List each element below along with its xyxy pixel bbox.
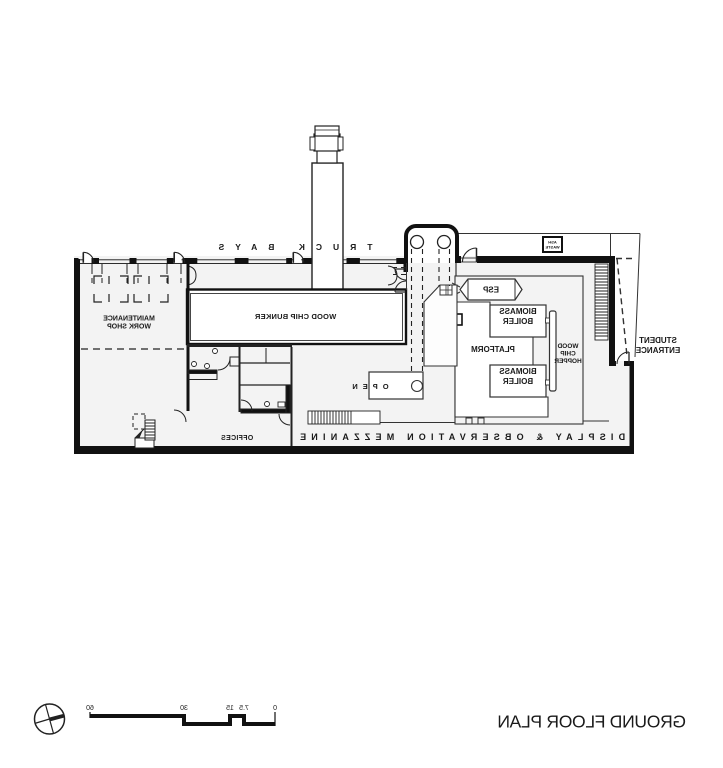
svg-text:BOILER: BOILER (503, 377, 533, 386)
svg-text:WASTE: WASTE (545, 245, 560, 250)
svg-text:WOOD: WOOD (557, 343, 578, 350)
svg-text:TRUCK BAYS: TRUCK BAYS (208, 242, 373, 252)
svg-text:30: 30 (180, 705, 188, 712)
svg-text:HOPPER: HOPPER (554, 358, 582, 365)
svg-text:ENTRANCE: ENTRANCE (635, 346, 680, 355)
svg-text:OFFICES: OFFICES (221, 435, 253, 442)
svg-text:WORK SHOP: WORK SHOP (107, 324, 151, 331)
svg-text:60: 60 (86, 705, 94, 712)
svg-text:DISPLAY & OBSERVATION MEZZANIN: DISPLAY & OBSERVATION MEZZANINE (295, 432, 625, 442)
svg-text:PLATFORM: PLATFORM (471, 345, 515, 354)
svg-text:STUDENT: STUDENT (639, 336, 677, 345)
svg-text:0: 0 (273, 705, 277, 712)
svg-text:BIOMASS: BIOMASS (499, 307, 537, 316)
svg-text:BIOMASS: BIOMASS (499, 367, 537, 376)
svg-text:GROUND FLOOR PLAN: GROUND FLOOR PLAN (498, 712, 686, 732)
svg-text:ESP: ESP (482, 286, 499, 295)
svg-text:7.5: 7.5 (239, 705, 249, 712)
svg-text:CHIP: CHIP (560, 351, 576, 358)
svg-text:OPEN: OPEN (347, 382, 388, 391)
svg-text:15: 15 (226, 705, 234, 712)
svg-text:BOILER: BOILER (503, 317, 533, 326)
svg-text:WOOD CHIP BUNKER: WOOD CHIP BUNKER (254, 312, 336, 321)
svg-text:MAINTENANCE: MAINTENANCE (103, 316, 155, 323)
